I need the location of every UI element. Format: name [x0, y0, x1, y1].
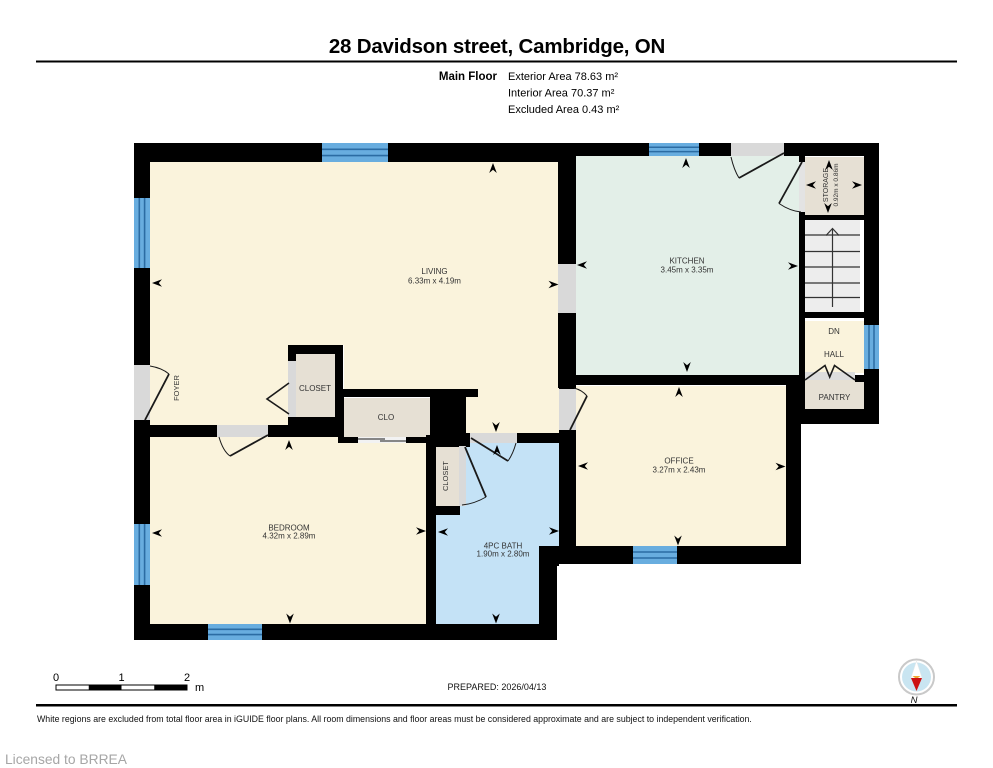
svg-text:HALL: HALL: [824, 350, 845, 359]
svg-text:2: 2: [184, 672, 190, 684]
svg-text:28 Davidson street, Cambridge,: 28 Davidson street, Cambridge, ON: [329, 35, 665, 58]
svg-text:0: 0: [53, 672, 59, 684]
svg-text:3.45m x 3.35m: 3.45m x 3.35m: [661, 266, 714, 275]
svg-text:1.90m x 2.80m: 1.90m x 2.80m: [477, 550, 530, 559]
svg-text:CLO: CLO: [378, 413, 394, 422]
svg-text:FOYER: FOYER: [172, 375, 181, 401]
svg-text:Main Floor: Main Floor: [439, 71, 498, 83]
svg-text:LIVING: LIVING: [421, 267, 447, 276]
svg-text:DN: DN: [828, 327, 840, 336]
svg-text:KITCHEN: KITCHEN: [669, 257, 704, 266]
svg-text:6.33m x 4.19m: 6.33m x 4.19m: [408, 277, 461, 286]
svg-text:3.27m x 2.43m: 3.27m x 2.43m: [653, 466, 706, 475]
svg-text:CLOSET: CLOSET: [441, 461, 450, 491]
svg-text:1: 1: [118, 672, 124, 684]
svg-text:OFFICE: OFFICE: [664, 457, 693, 466]
svg-text:CLOSET: CLOSET: [299, 384, 331, 393]
svg-text:Licensed to BRREA: Licensed to BRREA: [5, 752, 128, 767]
svg-text:0.92m x 0.86m: 0.92m x 0.86m: [833, 164, 840, 207]
svg-text:STORAGE: STORAGE: [823, 168, 830, 202]
svg-text:m: m: [195, 682, 204, 694]
svg-text:White regions are excluded fro: White regions are excluded from total fl…: [37, 714, 752, 724]
svg-text:Exterior Area 78.63 m²: Exterior Area 78.63 m²: [508, 71, 618, 83]
svg-text:Interior Area 70.37 m²: Interior Area 70.37 m²: [508, 88, 615, 100]
svg-text:PREPARED: 2026/04/13: PREPARED: 2026/04/13: [448, 682, 547, 692]
svg-text:4.32m x 2.89m: 4.32m x 2.89m: [263, 532, 316, 541]
svg-text:PANTRY: PANTRY: [819, 393, 851, 402]
svg-text:Excluded Area 0.43 m²: Excluded Area 0.43 m²: [508, 104, 620, 116]
